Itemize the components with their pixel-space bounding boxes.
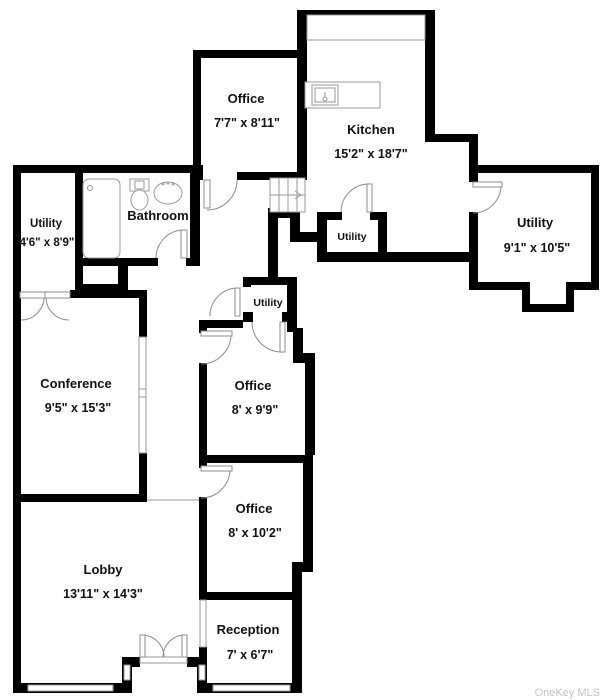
room-label-kitchen: Kitchen — [347, 122, 395, 137]
room-dims-reception: 7' x 6'7" — [227, 648, 274, 662]
utility-middle-hall-door — [210, 288, 240, 316]
room-label-lobby: Lobby — [84, 562, 124, 577]
room-dims-lobby: 13'11" x 14'3" — [63, 587, 143, 601]
office-top-door — [204, 180, 237, 210]
floor-plan-drawing: Office 7'7" x 8'11" Kitchen 15'2" x 18'7… — [0, 0, 605, 700]
bathtub — [83, 179, 120, 258]
entrance-sidelight-right — [199, 665, 205, 680]
room-dims-conference: 9'5" x 15'3" — [45, 401, 112, 415]
room-label-office-lower: Office — [236, 501, 273, 516]
kitchen-counter — [307, 15, 425, 40]
entrance-threshold — [140, 657, 187, 663]
utility-middle-office-door — [252, 322, 285, 352]
room-label-conference: Conference — [40, 376, 112, 391]
reception-side-window — [200, 600, 206, 647]
utility-right-door — [473, 182, 502, 213]
lobby-front-window — [28, 685, 113, 691]
stairs — [270, 178, 305, 212]
kitchen-island-sink — [305, 82, 380, 108]
room-label-reception: Reception — [217, 622, 280, 637]
room-dims-utility-right: 9'1" x 10'5" — [504, 241, 571, 255]
reception-front-window — [213, 685, 290, 691]
office-lower-door — [201, 466, 232, 498]
floor-plan: Office 7'7" x 8'11" Kitchen 15'2" x 18'7… — [0, 0, 605, 700]
room-label-utility-kitchen: Utility — [337, 231, 366, 243]
entrance-sidelight-left — [124, 665, 130, 680]
room-dims-office-top: 7'7" x 8'11" — [214, 116, 280, 130]
bathroom-door — [156, 230, 187, 258]
room-label-office-top: Office — [228, 91, 265, 106]
room-label-utility-left: Utility — [30, 218, 63, 230]
watermark-text: OneKey MLS — [535, 687, 600, 699]
room-dims-office-lower: 8' x 10'2" — [228, 526, 282, 540]
toilet — [130, 179, 149, 210]
utility-kitchen-door — [341, 184, 372, 212]
bathroom-sink — [154, 182, 182, 204]
room-dims-kitchen: 15'2" x 18'7" — [334, 147, 407, 161]
entrance-double-door — [140, 635, 187, 657]
room-label-office-middle: Office — [235, 378, 272, 393]
conference-double-door — [20, 292, 70, 320]
room-dims-office-middle: 8' x 9'9" — [232, 403, 279, 417]
room-label-utility-right: Utility — [517, 215, 554, 230]
room-dims-utility-left: 4'6" x 8'9" — [20, 237, 75, 249]
room-label-utility-middle: Utility — [253, 297, 282, 309]
office-middle-door — [201, 331, 232, 364]
room-label-bathroom: Bathroom — [127, 208, 188, 223]
conference-window-mullion — [139, 389, 146, 397]
